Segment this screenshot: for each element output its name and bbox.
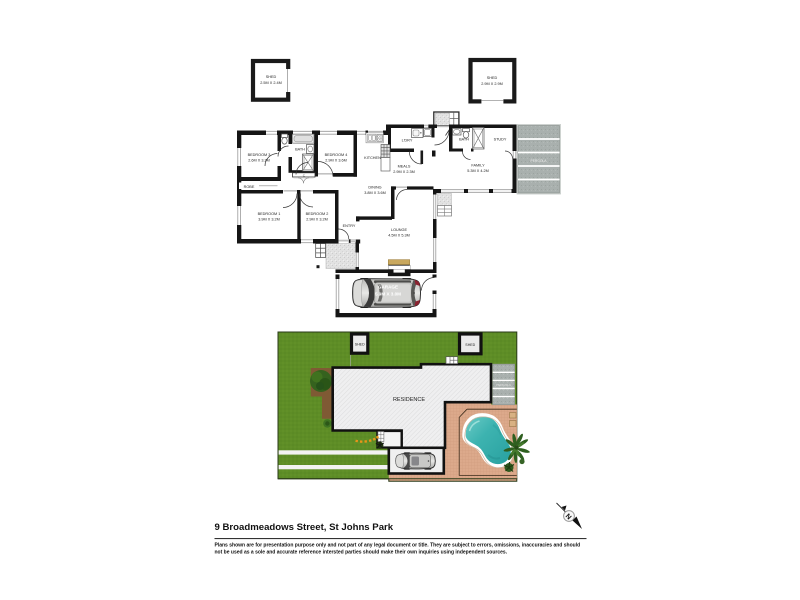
svg-text:2.9M X 3.6M: 2.9M X 3.6M	[325, 159, 347, 163]
svg-text:3.9M X 3.2M: 3.9M X 3.2M	[258, 218, 280, 222]
svg-text:PERGOLA: PERGOLA	[496, 383, 511, 387]
svg-text:LOUNGE: LOUNGE	[391, 228, 408, 232]
svg-text:2.5M X 2.4M: 2.5M X 2.4M	[260, 81, 282, 85]
svg-text:STUDY: STUDY	[494, 138, 507, 142]
svg-text:ROBE: ROBE	[244, 185, 255, 189]
svg-text:BEDROOM 1: BEDROOM 1	[258, 212, 281, 216]
svg-text:Plans shown are for presentati: Plans shown are for presentation purpose…	[215, 543, 581, 549]
svg-text:2.9M X 2.3M: 2.9M X 2.3M	[393, 170, 415, 174]
svg-text:ENTRY: ENTRY	[343, 224, 356, 228]
svg-text:2.6M X 3.2M: 2.6M X 3.2M	[248, 159, 270, 163]
svg-text:DINING: DINING	[368, 186, 381, 190]
svg-text:RESIDENCE: RESIDENCE	[393, 397, 425, 403]
svg-text:not be used as a sole and accu: not be used as a sole and accurate refer…	[215, 550, 508, 556]
svg-text:KITCHEN: KITCHEN	[364, 156, 381, 160]
svg-text:2.9M X 3.2M: 2.9M X 3.2M	[306, 218, 328, 222]
svg-text:L'DRY: L'DRY	[402, 139, 413, 143]
svg-text:5.9M X 3.0M: 5.9M X 3.0M	[375, 292, 401, 297]
svg-text:2.9M X 2.9M: 2.9M X 2.9M	[481, 82, 503, 86]
svg-text:GARAGE: GARAGE	[378, 285, 398, 290]
svg-text:4.5M X 5.3M: 4.5M X 5.3M	[388, 234, 410, 238]
svg-text:5.3M X 4.2M: 5.3M X 4.2M	[467, 169, 489, 173]
svg-text:SHED: SHED	[465, 343, 475, 347]
svg-text:BEDROOM 4: BEDROOM 4	[325, 153, 348, 157]
svg-text:BATH: BATH	[459, 138, 469, 142]
svg-text:9 Broadmeadows Street, St John: 9 Broadmeadows Street, St Johns Park	[215, 522, 394, 533]
svg-text:BATH: BATH	[295, 148, 305, 152]
svg-text:FAMILY: FAMILY	[471, 164, 485, 168]
svg-text:SHED: SHED	[487, 76, 498, 80]
svg-text:PERGOLA: PERGOLA	[531, 159, 548, 163]
svg-text:SHED: SHED	[355, 343, 365, 347]
svg-text:SHED: SHED	[266, 75, 277, 79]
svg-text:3.8M X 3.6M: 3.8M X 3.6M	[364, 191, 386, 195]
svg-text:BEDROOM 2: BEDROOM 2	[306, 212, 329, 216]
svg-text:MEALS: MEALS	[398, 165, 411, 169]
svg-text:BEDROOM 3: BEDROOM 3	[248, 153, 271, 157]
